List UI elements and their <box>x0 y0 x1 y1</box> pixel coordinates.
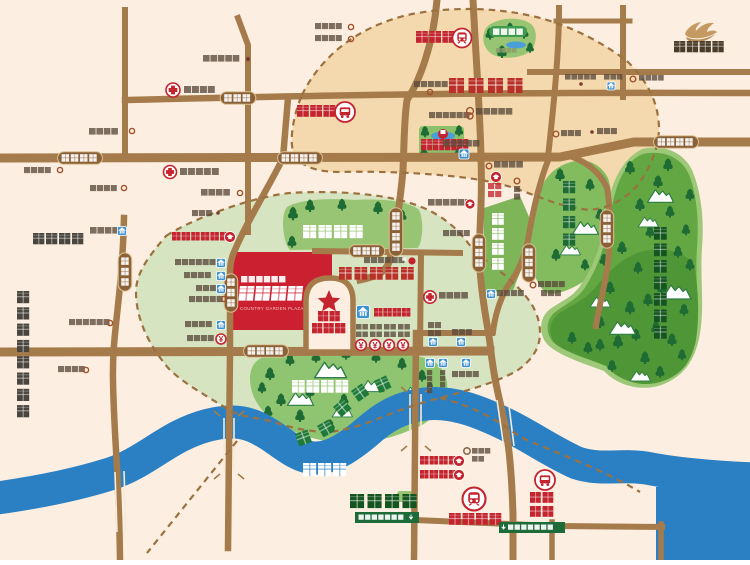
svg-text:¥: ¥ <box>358 340 363 350</box>
svg-text:¥: ¥ <box>219 335 224 344</box>
svg-text:¥: ¥ <box>386 340 391 350</box>
svg-text:¥: ¥ <box>400 340 405 350</box>
svg-text:COUNTRY GARDEN PLAZA: COUNTRY GARDEN PLAZA <box>240 306 304 311</box>
svg-text:¥: ¥ <box>372 340 377 350</box>
